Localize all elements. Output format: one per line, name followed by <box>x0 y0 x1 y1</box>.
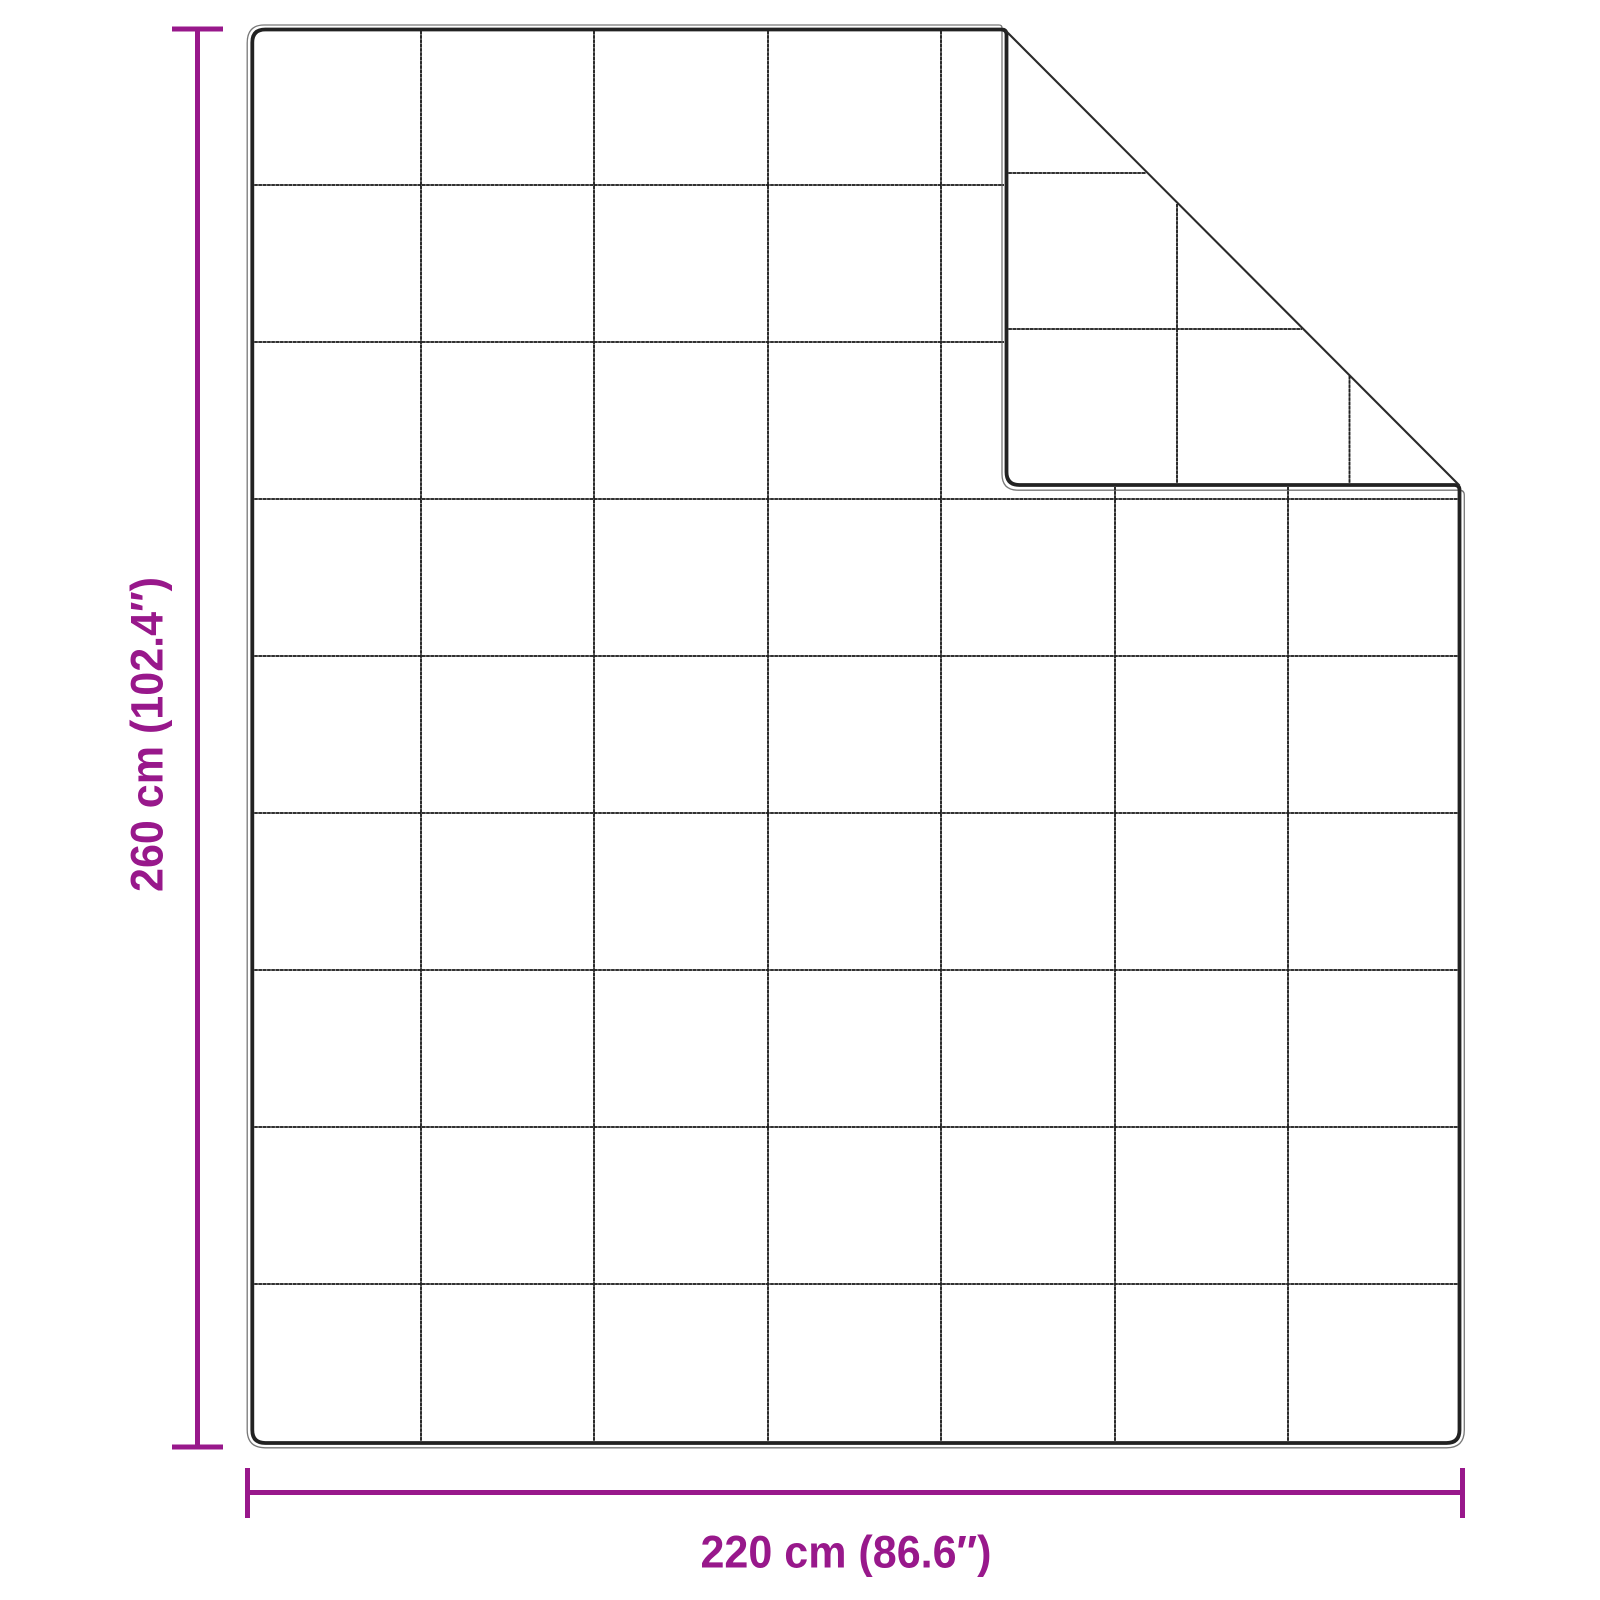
svg-text:220 cm (86.6″): 220 cm (86.6″) <box>701 1527 992 1578</box>
svg-text:260 cm (102.4″): 260 cm (102.4″) <box>122 577 173 892</box>
